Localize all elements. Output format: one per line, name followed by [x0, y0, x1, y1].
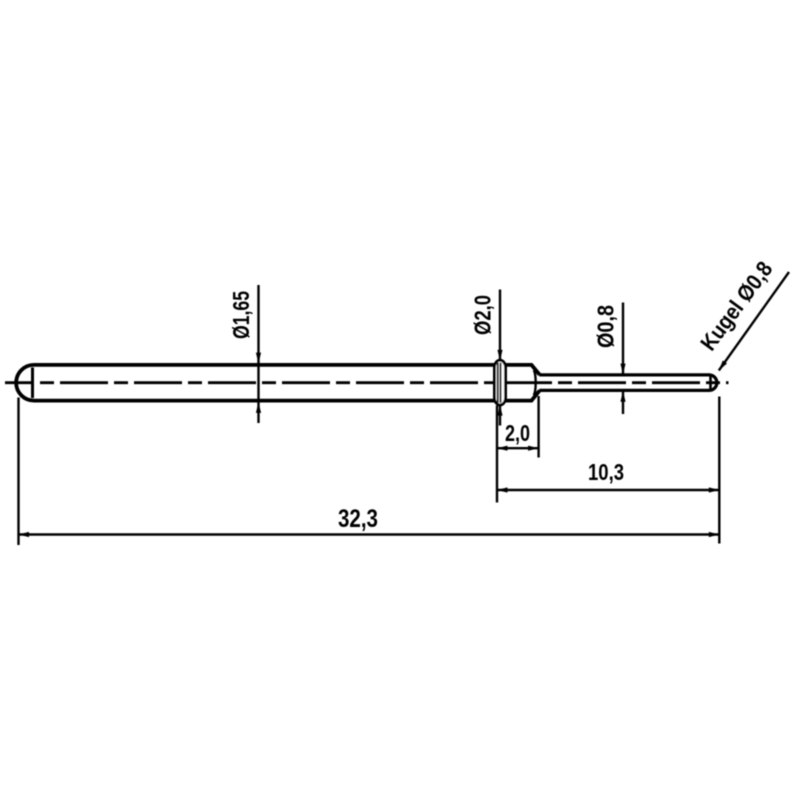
- svg-text:Ø2,0: Ø2,0: [470, 295, 496, 335]
- svg-text:32,3: 32,3: [338, 505, 378, 533]
- svg-text:Ø0,8: Ø0,8: [593, 305, 619, 348]
- svg-text:Ø1,65: Ø1,65: [228, 291, 254, 339]
- svg-text:10,3: 10,3: [588, 459, 624, 485]
- svg-text:2,0: 2,0: [505, 420, 530, 446]
